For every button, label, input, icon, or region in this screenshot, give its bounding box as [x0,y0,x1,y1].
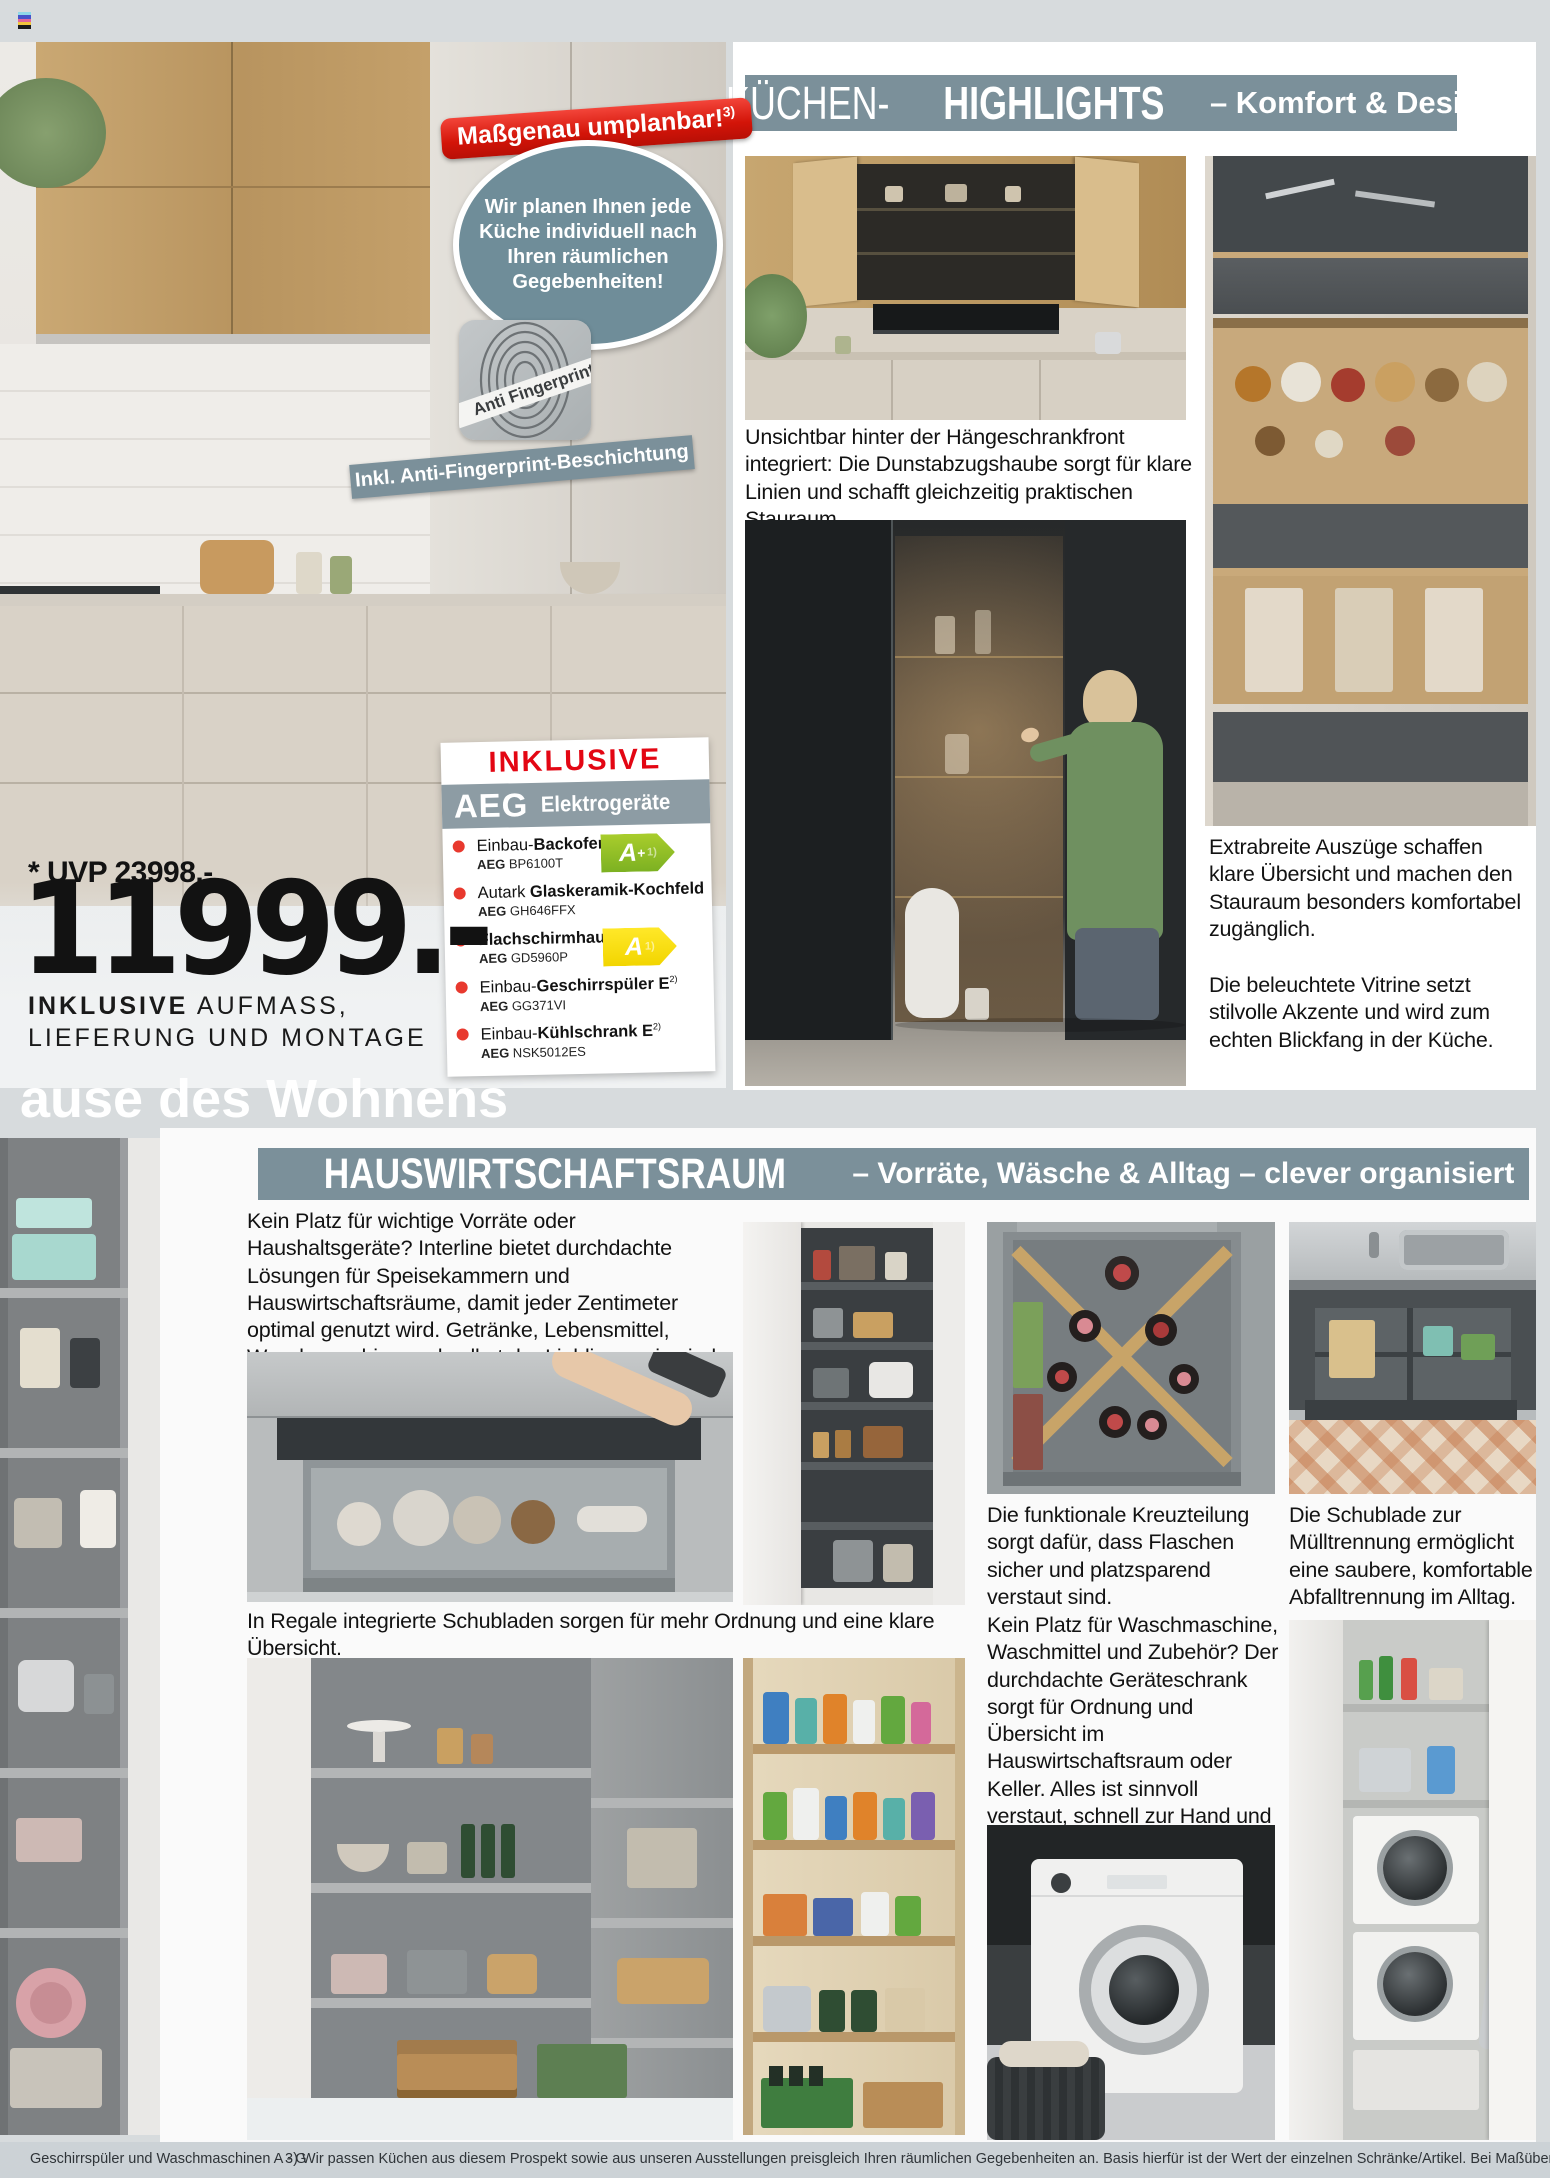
kitchen-highlights-header: KÜCHEN-HIGHLIGHTS– Komfort & Design [745,75,1457,131]
caption-waste: Die Schublade zur Mülltrennung ermöglich… [1289,1502,1539,1611]
caption-hood: Unsichtbar hinter der Hängeschrankfront … [745,424,1201,533]
hwr-title-bold: HAUSWIRTSCHAFTSRAUM [323,1150,785,1199]
watermark-text: ause des Wohnens [20,1068,508,1130]
corner-pantry-photo [247,1658,733,2140]
caption-vitrine: Die beleuchtete Vitrine setzt stilvolle … [1209,972,1531,1054]
waste-drawer-photo [1289,1222,1536,1494]
price-includes-line1: INKLUSIVE AUFMASS, [28,992,349,1021]
footer-note: 3) Wir passen Küchen aus diesem Prospekt… [285,2151,1550,2167]
inklusive-label: INKLUSIVE [441,737,710,781]
vitrine-photo [745,520,1186,1086]
page-footer: Geschirrspüler und Waschmaschinen A - G … [0,2142,1550,2178]
caption-pullouts: Extrabreite Auszüge schaffen klare Übers… [1209,834,1531,943]
main-price: 11999.- [20,866,487,994]
drawers-photo [1205,156,1536,826]
hwr-title-rest: – Vorräte, Wäsche & Alltag – clever orga… [852,1157,1514,1191]
wine-rack-photo [987,1222,1275,1494]
bubble-text: Wir planen Ihnen jede Küche individuell … [477,195,699,295]
shelf-strip-photo [0,1138,160,2135]
bullet-icon [453,840,465,852]
header-title-rest: – Komfort & Design [1210,85,1499,121]
aeg-item-kochfeld: Autark Glaskeramik-Kochfeld AEG GH646FFX [477,879,712,922]
aeg-brand-sub: Elektrogeräte [540,789,670,818]
utility-cabinet-photo [1289,1620,1536,2140]
aeg-item-kuehlschrank: Einbau-Kühlschrank E2) AEG NSK5012ES [480,1020,715,1063]
corner-logo-icon [18,12,31,29]
washing-machine-photo [987,1825,1275,2140]
aeg-brand-band: AEG Elektrogeräte [441,779,710,829]
supplies-shelf-photo [743,1658,965,2135]
aeg-item-geschirrspueler: Einbau-Geschirrspüler E2) AEG GG371VI [479,973,714,1016]
footer-left: Geschirrspüler und Waschmaschinen A - G [30,2151,307,2167]
anti-fingerprint-badge: Anti Fingerprint [459,320,591,440]
hauswirtschaftsraum-header: HAUSWIRTSCHAFTSRAUM– Vorräte, Wäsche & A… [258,1148,1529,1200]
header-title-bold: HIGHLIGHTS [943,76,1164,130]
aeg-logo: AEG [453,786,528,826]
aeg-item-backofen: Einbau-Backofen AEG BP6100T A+1) [477,832,712,875]
price-includes-line2: LIEFERUNG UND MONTAGE [28,1024,427,1053]
aeg-item-haube: Flachschirmhaube AEG GD5960P A1) [478,926,713,969]
drawer-hand-photo [247,1352,733,1602]
badge-sup: 3) [722,104,735,120]
caption-cross: Die funktionale Kreuzteilung sorgt dafür… [987,1502,1277,1611]
pantry-cabinet-photo [743,1222,965,1605]
catalog-page: KÜCHEN-HIGHLIGHTS– Komfort & Design Unsi… [0,0,1550,2178]
planning-bubble: Wir planen Ihnen jede Küche individuell … [453,140,723,350]
bullet-icon [457,1028,469,1040]
caption-drawers: In Regale integrierte Schubladen sorgen … [247,1608,947,1663]
hood-cabinet-photo [745,156,1186,420]
